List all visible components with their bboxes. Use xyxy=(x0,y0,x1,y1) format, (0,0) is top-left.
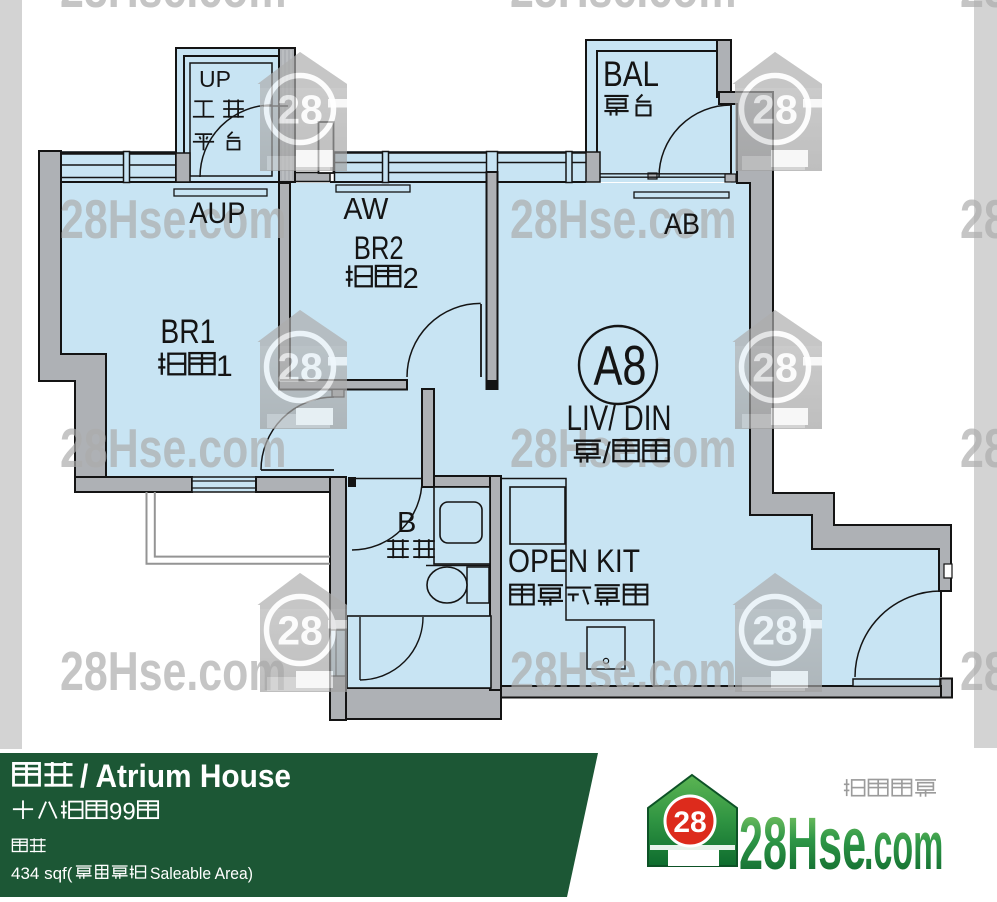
svg-text:AW: AW xyxy=(343,192,388,226)
svg-text:BAL: BAL xyxy=(603,54,659,94)
svg-text:B: B xyxy=(397,507,416,539)
svg-text:2: 2 xyxy=(403,263,419,295)
svg-text:.com: .com xyxy=(864,808,943,884)
svg-text:BR2: BR2 xyxy=(354,230,404,266)
svg-text:A8: A8 xyxy=(594,334,647,397)
svg-text:Saleable Area): Saleable Area) xyxy=(150,864,253,883)
svg-text:434 sqf(: 434 sqf( xyxy=(11,864,73,883)
svg-text:LIV/ DIN: LIV/ DIN xyxy=(567,399,672,438)
svg-text:/ Atrium House: / Atrium House xyxy=(80,758,291,794)
svg-text:AB: AB xyxy=(664,208,700,241)
svg-text:28Hse: 28Hse xyxy=(739,802,866,885)
svg-text:28: 28 xyxy=(673,806,706,839)
svg-text:BR1: BR1 xyxy=(160,313,215,351)
svg-text:/: / xyxy=(603,437,612,470)
svg-text:1: 1 xyxy=(216,350,233,383)
svg-text:UP: UP xyxy=(199,66,231,92)
svg-text:OPEN KIT: OPEN KIT xyxy=(508,543,640,579)
svg-text:AUP: AUP xyxy=(189,197,245,230)
svg-text:99: 99 xyxy=(109,799,136,826)
